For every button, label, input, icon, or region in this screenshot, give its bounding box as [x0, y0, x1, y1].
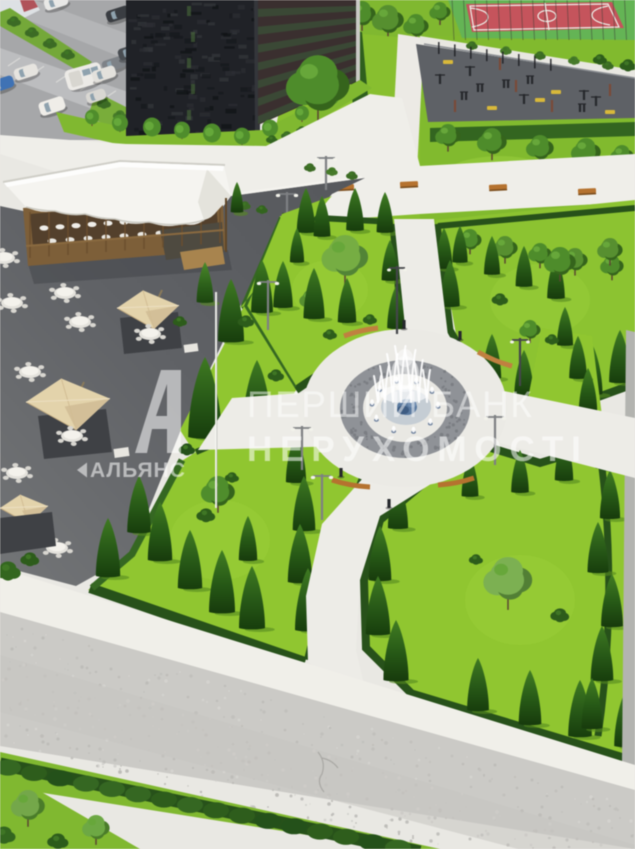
svg-text:ПЕРШИЙ БАНК: ПЕРШИЙ БАНК	[247, 383, 533, 425]
svg-text:НЕРУХОМОСТІ: НЕРУХОМОСТІ	[247, 430, 589, 469]
svg-text:АЛЬЯНС: АЛЬЯНС	[90, 459, 186, 482]
